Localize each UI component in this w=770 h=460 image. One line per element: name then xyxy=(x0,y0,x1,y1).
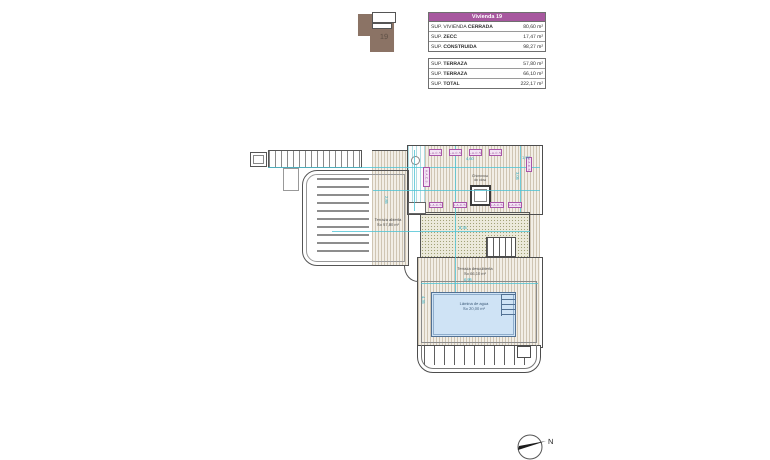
key-plan-building-b xyxy=(372,23,392,29)
stair xyxy=(486,237,516,257)
landing-outline xyxy=(283,168,299,191)
key-plan: 19 xyxy=(352,11,396,53)
table-row: SUP. CONSTRUIDA98,27 m² xyxy=(429,41,545,51)
label-line: S= 57,80 m² xyxy=(377,222,399,227)
table-row: SUP. ZECC17,47 m² xyxy=(429,31,545,41)
ac-unit-label: A.A.C.S. xyxy=(429,149,442,156)
key-plan-building-a xyxy=(372,12,396,23)
ac-unit-label: A.A.C.S. xyxy=(508,202,522,208)
table-row: SUP. TERRAZA57,80 m² xyxy=(429,59,545,68)
dimension-line xyxy=(373,190,540,191)
table-row: SUP. TERRAZA66,10 m² xyxy=(429,68,545,78)
area-table-vivienda: Vivienda 19 SUP. VIVIENDA CERRADA80,60 m… xyxy=(428,12,546,52)
walkway-entry-post-inner xyxy=(253,155,264,164)
vent-circle xyxy=(411,156,420,165)
table-header: Vivienda 19 xyxy=(429,13,545,22)
deck-right-strip xyxy=(530,212,540,258)
ac-unit-label: A.A.C.S. xyxy=(490,202,504,208)
north-label: N xyxy=(548,437,553,446)
access-walkway xyxy=(268,150,362,168)
rooflight-box xyxy=(408,202,426,214)
ac-unit-label: A.A.C.S. xyxy=(453,202,467,208)
area-table-terrazas: SUP. TERRAZA57,80 m²SUP. TERRAZA66,10 m²… xyxy=(428,58,546,89)
dimension-text: 4,60 xyxy=(466,156,474,161)
table-row: SUP. VIVIENDA CERRADA80,60 m² xyxy=(429,22,545,31)
dimension-line xyxy=(414,150,415,211)
north-arrow: N xyxy=(506,431,560,460)
dimension-line xyxy=(268,167,540,168)
dimension-text: 6,95 xyxy=(464,277,472,282)
dimension-text: 4,35 xyxy=(421,296,426,304)
label-terraza-abierta: Terraza abierta S= 57,80 m² xyxy=(358,218,418,228)
label-line: de obra xyxy=(474,178,486,182)
dimension-line xyxy=(421,283,538,284)
dimension-text: 8,35 xyxy=(459,225,467,230)
table-row: SUP. TOTAL222,17 m² xyxy=(429,78,545,88)
ac-unit-label: A.A.C.S. xyxy=(429,202,443,208)
key-plan-plot-number: 19 xyxy=(372,32,396,41)
corner-arc xyxy=(404,266,418,282)
ac-unit-label: A.A.C.S. xyxy=(449,149,462,156)
floor-plan-sheet: 19 Vivienda 19 SUP. VIVIENDA CERRADA80,6… xyxy=(0,0,770,460)
dimension-text: 1,97 xyxy=(522,155,530,160)
ac-unit-label: A.A.C.S. xyxy=(423,167,430,187)
dimension-text: 2,85 xyxy=(384,196,389,204)
label-pool: Lámina de agua S= 20,00 m² xyxy=(443,302,505,312)
label-line: S= 66,10 m² xyxy=(464,271,486,276)
label-line: S= 20,00 m² xyxy=(463,306,485,311)
label-terraza-descubierta: Terraza descubierta S= 66,10 m² xyxy=(445,267,505,277)
label-chimenea: Chimenea de obra xyxy=(452,174,508,182)
ac-unit-label: A.A.C.S. xyxy=(469,149,482,156)
dimension-line xyxy=(332,231,530,232)
dimension-text: 3,05 xyxy=(515,172,520,180)
ac-unit-label: A.A.C.S. xyxy=(489,149,502,156)
equipment-box xyxy=(517,346,531,358)
